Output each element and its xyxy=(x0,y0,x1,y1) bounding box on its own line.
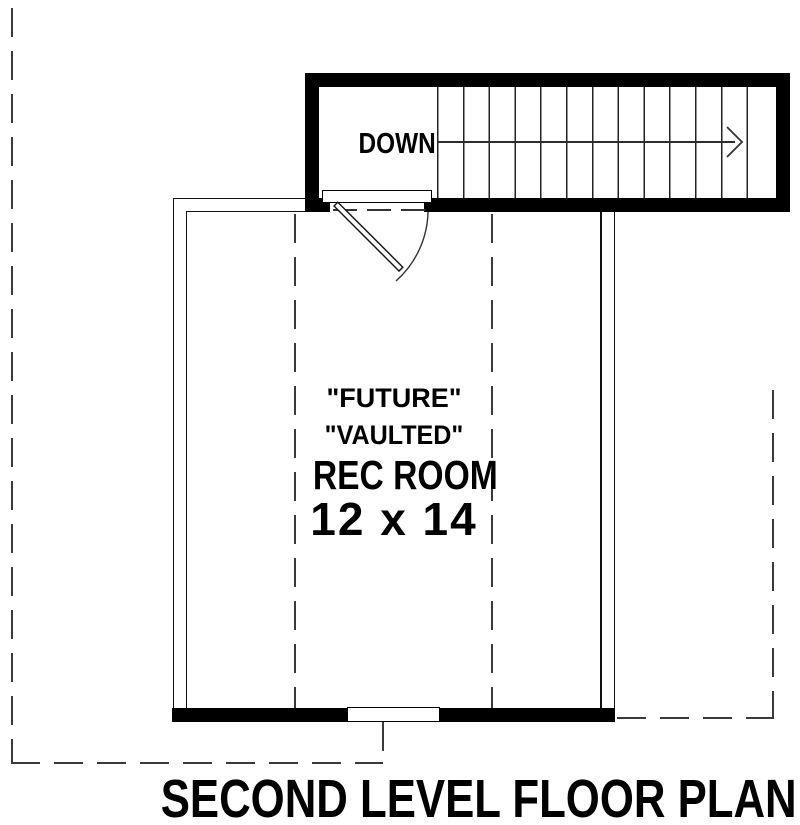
stair-direction-arrow-line xyxy=(437,141,735,143)
room-label-vaulted: "VAULTED" xyxy=(302,420,486,451)
door-swing-arc xyxy=(396,212,428,281)
window-projection-line xyxy=(382,722,384,763)
plan-title: SECOND LEVEL FLOOR PLAN xyxy=(161,768,688,825)
door-leaf xyxy=(334,202,403,271)
stair-down-label: DOWN xyxy=(359,128,428,161)
room-label-future: "FUTURE" xyxy=(295,383,493,414)
roof-line-left-dashed xyxy=(11,8,13,764)
vault-ceiling-line-left xyxy=(294,214,296,708)
roof-line-right-vertical-dashed xyxy=(772,390,774,719)
rec-room-right-wall-inner xyxy=(600,212,602,708)
room-label-dimensions: 12 x 14 xyxy=(295,492,493,546)
door-header xyxy=(322,190,432,203)
floor-plan-canvas: DOWN "FUTURE" "VAULTED" REC ROOM 12 x 14… xyxy=(0,0,800,825)
roof-line-right-horizontal-dashed xyxy=(617,717,774,719)
door-opening-dashed-line xyxy=(333,209,425,211)
roof-line-bottom-dashed xyxy=(11,762,383,764)
rec-room-wall-inner-line xyxy=(186,211,305,708)
window-opening xyxy=(347,707,440,722)
rec-room-right-wall-outer xyxy=(614,212,616,708)
